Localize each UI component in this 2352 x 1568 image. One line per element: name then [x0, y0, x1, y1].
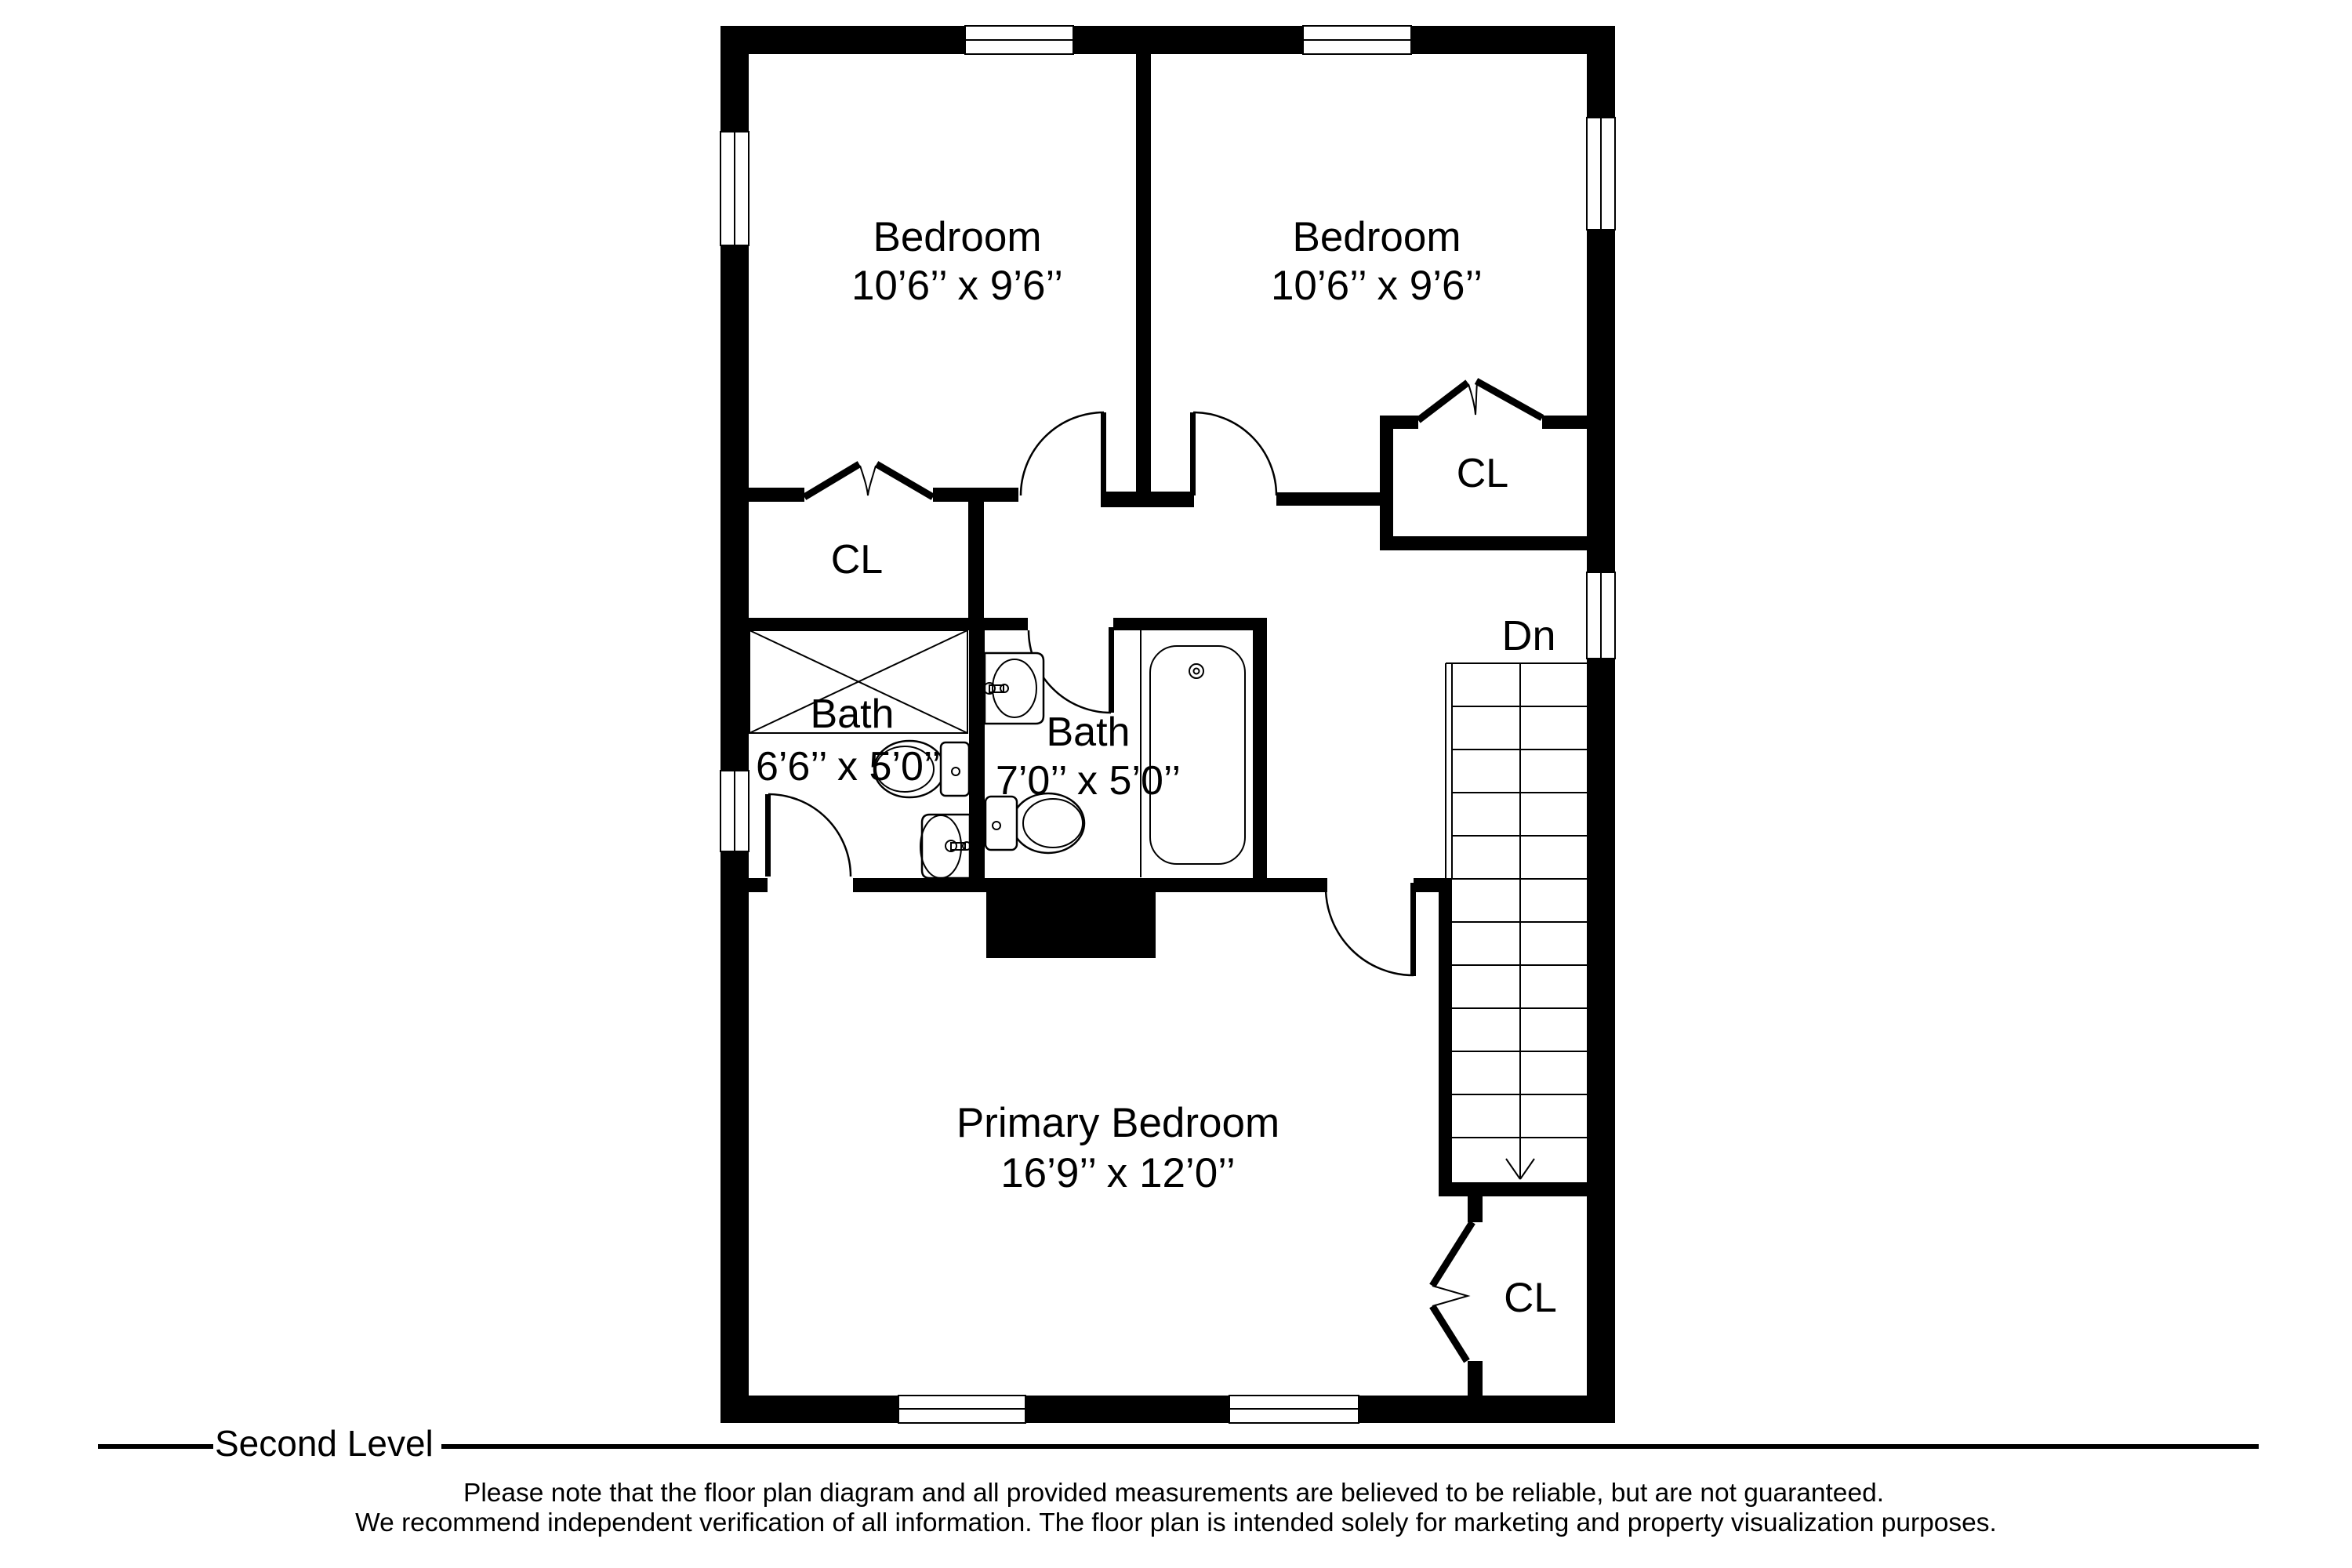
- svg-text:Bedroom: Bedroom: [873, 214, 1041, 260]
- svg-text:CL: CL: [831, 537, 883, 583]
- svg-text:CL: CL: [1457, 451, 1508, 496]
- svg-text:Primary Bedroom: Primary Bedroom: [956, 1100, 1279, 1146]
- svg-text:Please note that the floor pla: Please note that the floor plan diagram …: [463, 1479, 1884, 1508]
- svg-text:Bath: Bath: [1047, 710, 1131, 755]
- svg-text:Dn: Dn: [1501, 612, 1555, 659]
- svg-text:Bath: Bath: [811, 691, 895, 737]
- svg-text:Bedroom: Bedroom: [1292, 214, 1461, 260]
- svg-text:6’6’’ x 5’0’’: 6’6’’ x 5’0’’: [756, 744, 941, 789]
- svg-text:CL: CL: [1504, 1275, 1557, 1321]
- svg-text:10’6’’ x 9’6’’: 10’6’’ x 9’6’’: [851, 263, 1063, 309]
- svg-text:16’9’’ x 12’0’’: 16’9’’ x 12’0’’: [1000, 1150, 1236, 1196]
- svg-text:We recommend independent verif: We recommend independent verification of…: [355, 1508, 1997, 1537]
- svg-text:7’0’’ x 5’0’’: 7’0’’ x 5’0’’: [996, 758, 1181, 804]
- svg-text:10’6’’ x 9’6’’: 10’6’’ x 9’6’’: [1271, 263, 1483, 309]
- svg-text:Second Level: Second Level: [215, 1423, 434, 1464]
